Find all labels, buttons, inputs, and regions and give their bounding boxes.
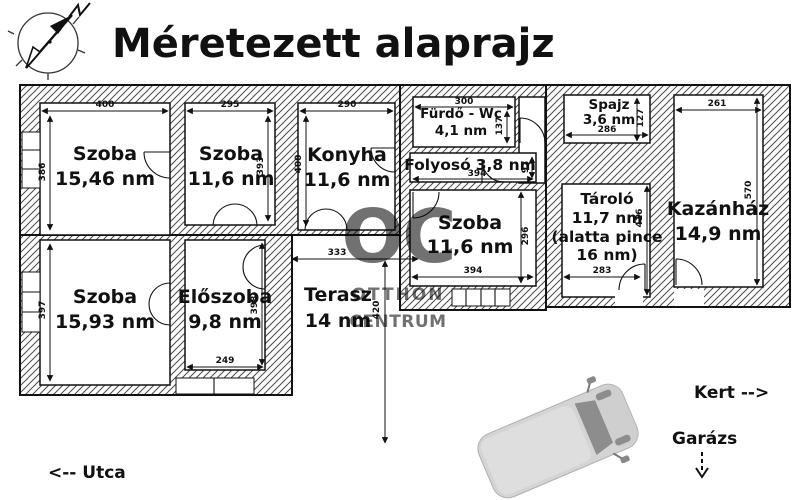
room-area: 11,7 nm xyxy=(572,209,643,227)
room-area: 14,9 nm xyxy=(675,223,762,245)
dim-label: 394 xyxy=(464,266,483,276)
label-garazs: Garázs xyxy=(672,429,737,449)
room-label: Szoba xyxy=(199,143,263,165)
north-compass-icon xyxy=(8,3,90,80)
dim-label: 397 xyxy=(38,301,48,320)
floor-plan-svg: Méretezett alaprajz xyxy=(0,0,796,500)
dim-label: 261 xyxy=(708,99,727,109)
car-mirror xyxy=(620,455,631,464)
watermark-logo: OC xyxy=(341,194,454,280)
dim-label: 249 xyxy=(216,356,235,366)
dim-label: 127 xyxy=(636,109,646,128)
dim-label: 296 xyxy=(521,227,531,246)
doorway-tarolo xyxy=(615,289,643,306)
room-area: 11,6 nm xyxy=(304,169,391,191)
room-label: Folyosó xyxy=(404,156,471,174)
room-note: 16 nm) xyxy=(576,246,637,264)
room-label: Spajz xyxy=(589,97,630,113)
dim-label: 400 xyxy=(294,155,304,174)
dim-label: 386 xyxy=(38,163,48,182)
room-label: Tároló xyxy=(580,190,633,208)
dim-label: 400 xyxy=(96,100,115,110)
room-label-folyoso: Folyosó3,8 nm xyxy=(404,156,536,174)
car-mirror xyxy=(586,376,597,385)
annotations: Kert --> Garázs <-- Utca xyxy=(48,383,769,483)
room-label: Előszoba xyxy=(178,286,272,308)
room-area: 4,1 nm xyxy=(435,123,487,139)
room-label: Szoba xyxy=(73,143,137,165)
room-area: 11,6 nm xyxy=(188,168,275,190)
watermark-text: CENTRUM xyxy=(349,312,446,332)
watermark-text: OTTHON xyxy=(352,285,445,305)
garazs-arrow-icon xyxy=(696,452,708,477)
room-area: 9,8 nm xyxy=(188,311,262,333)
room-label: Konyha xyxy=(307,144,387,166)
room-area: 15,93 nm xyxy=(55,311,155,333)
dim-label: 283 xyxy=(593,266,612,276)
page-title: Méretezett alaprajz xyxy=(112,21,555,67)
room-label: Fürdő - Wc xyxy=(420,106,502,122)
room-area: 15,46 nm xyxy=(55,168,155,190)
room-note: (alatta pince xyxy=(551,228,662,246)
watermark: OC OTTHON CENTRUM xyxy=(341,194,454,332)
label-utca: <-- Utca xyxy=(48,463,126,483)
window-bottom-1 xyxy=(176,378,254,394)
dim-label: 295 xyxy=(221,100,240,110)
label-kert: Kert --> xyxy=(694,383,769,403)
floor-plan-page: Méretezett alaprajz xyxy=(0,0,796,500)
dim-label: 570 xyxy=(744,181,754,200)
room-area: 3,6 nm xyxy=(583,112,635,128)
dim-label: 290 xyxy=(338,100,357,110)
room-area: 3,8 nm xyxy=(476,156,536,174)
room-label: Kazánház xyxy=(667,198,769,220)
car-top-view xyxy=(468,368,648,500)
room-label: Szoba xyxy=(73,286,137,308)
doorway-kazanhaz xyxy=(674,289,704,306)
